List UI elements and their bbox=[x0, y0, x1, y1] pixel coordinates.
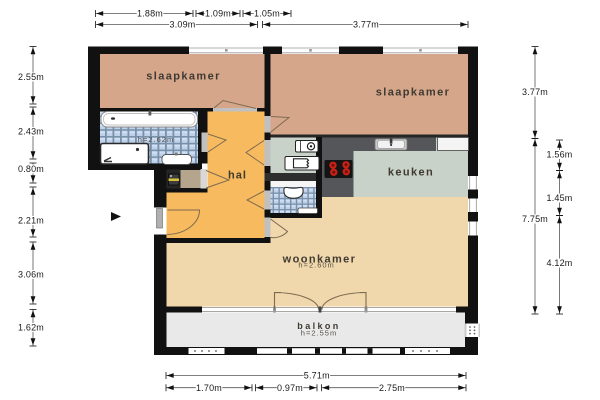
svg-text:4.12m: 4.12m bbox=[546, 258, 572, 268]
svg-text:1.05m: 1.05m bbox=[254, 9, 280, 19]
svg-text:1.70m: 1.70m bbox=[196, 383, 222, 393]
svg-text:hal: hal bbox=[228, 169, 247, 181]
svg-text:5.71m: 5.71m bbox=[304, 371, 330, 381]
svg-text:3.77m: 3.77m bbox=[353, 20, 379, 30]
svg-text:2.43m: 2.43m bbox=[18, 127, 44, 137]
svg-text:0.97m: 0.97m bbox=[277, 383, 303, 393]
svg-text:1.56m: 1.56m bbox=[546, 150, 572, 160]
svg-text:3.77m: 3.77m bbox=[522, 87, 548, 97]
svg-text:2.55m: 2.55m bbox=[18, 72, 44, 82]
svg-text:h=2.55m: h=2.55m bbox=[301, 329, 337, 338]
svg-text:3.09m: 3.09m bbox=[169, 20, 195, 30]
svg-text:keuken: keuken bbox=[388, 167, 434, 179]
svg-text:1.45m: 1.45m bbox=[546, 193, 572, 203]
svg-text:3.06m: 3.06m bbox=[18, 270, 44, 280]
svg-text:1.09m: 1.09m bbox=[205, 9, 231, 19]
svg-text:2.75m: 2.75m bbox=[379, 383, 405, 393]
svg-text:7.75m: 7.75m bbox=[522, 214, 548, 224]
svg-text:slaapkamer: slaapkamer bbox=[146, 71, 221, 83]
svg-text:h=2.62m: h=2.62m bbox=[138, 135, 174, 144]
svg-text:h=2.60m: h=2.60m bbox=[298, 261, 334, 270]
svg-text:slaapkamer: slaapkamer bbox=[376, 87, 451, 99]
svg-text:2.21m: 2.21m bbox=[18, 216, 44, 226]
svg-text:1.88m: 1.88m bbox=[137, 9, 163, 19]
svg-text:1.62m: 1.62m bbox=[18, 323, 44, 333]
svg-text:0.80m: 0.80m bbox=[18, 164, 44, 174]
